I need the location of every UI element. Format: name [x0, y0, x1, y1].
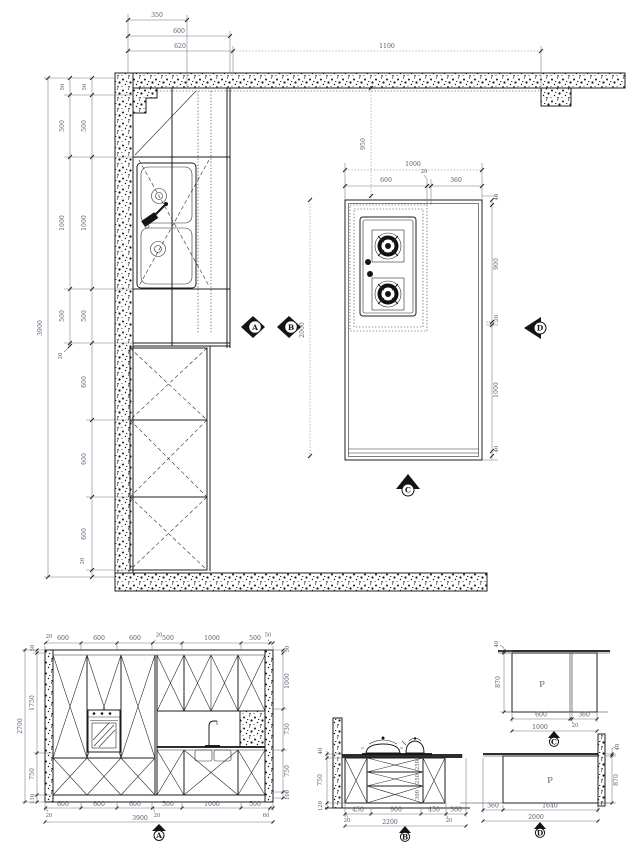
dim-label: 60 [263, 813, 270, 819]
dim-label: 50 [30, 645, 36, 652]
dim-label: 620 [174, 43, 186, 50]
dim-label: 600 [380, 177, 392, 184]
dim-label: 50 [265, 633, 272, 639]
dim-label: 500 [59, 310, 66, 322]
kettle-icon [402, 737, 424, 753]
dim-label: 300 [415, 790, 421, 800]
top-wall [115, 73, 625, 88]
dim-label: 600 [93, 801, 105, 808]
dim-label: 360 [450, 807, 462, 814]
dim-label: 730 [284, 723, 291, 735]
elevation-d-marker: D [534, 822, 546, 837]
dim-label: 750 [284, 765, 291, 777]
dim-label: 40 [615, 744, 621, 751]
dim-label: 600 [57, 635, 69, 642]
dim-label: 1100 [379, 43, 395, 50]
dim-label: 870 [613, 774, 620, 786]
dim-label: 600 [81, 376, 88, 388]
elevation-c-marker: C [548, 731, 560, 746]
dim-label: 1000 [59, 215, 66, 231]
counter-run [130, 88, 541, 571]
wall-return [240, 711, 265, 747]
dim-label: 360 [578, 712, 590, 719]
marker-letter: A [251, 323, 258, 332]
dim-label: 100 [285, 790, 291, 800]
dim-label: 500 [162, 635, 174, 642]
dim-label: 600 [535, 712, 547, 719]
dim-label: 250 [415, 774, 421, 784]
dim-label: 130 [30, 794, 36, 804]
marker-a: A [241, 316, 265, 338]
marker-b: B [277, 316, 301, 338]
dim-label: 50 [82, 84, 88, 91]
dim-label: 20 [494, 315, 500, 322]
dim-label: 600 [129, 801, 141, 808]
dim-label: 600 [129, 635, 141, 642]
marker-letter: C [551, 737, 557, 746]
pot-icon [361, 737, 403, 754]
dim-label: 2000 [299, 322, 306, 338]
dim-label: 3900 [132, 815, 148, 822]
panel-label: P [547, 776, 553, 786]
dim-label: 600 [81, 453, 88, 465]
dim-label: 1000 [284, 673, 291, 689]
dim-label: 50 [60, 84, 66, 91]
dim-label: 20 [46, 634, 53, 640]
dim-label: 500 [249, 635, 261, 642]
dim-label: 20 [344, 818, 351, 824]
elevation-c: P 40 870 600 360 20 1000 C [494, 641, 610, 747]
dim-label: 360 [487, 803, 499, 810]
dim-label: 3900 [37, 320, 44, 336]
marker-letter: B [288, 323, 294, 332]
elevation-d: P 40 870 360 1640 2000 D [460, 734, 621, 837]
island-dimensions: 950 1000 600 20 360 2000 40 900 20 1000 … [299, 86, 500, 460]
dim-label: 500 [162, 801, 174, 808]
faucet-icon [141, 202, 168, 228]
burner-icon [372, 230, 404, 262]
dim-label: 1000 [81, 215, 88, 231]
dim-label: 600 [93, 635, 105, 642]
marker-letter: D [537, 324, 544, 333]
dim-label: 950 [360, 138, 367, 150]
elevation-a-marker: A [152, 824, 166, 841]
dim-label: 750 [317, 774, 324, 786]
kitchen-plan-drawing: 350 600 620 1100 3900 50 500 1000 500 20… [0, 0, 632, 842]
bottom-wall [115, 573, 487, 591]
marker-c: C [396, 474, 420, 496]
dim-label: 1000 [405, 161, 421, 168]
panel-label: P [539, 680, 545, 690]
dim-label: 350 [151, 12, 163, 19]
dim-label: 1000 [204, 635, 220, 642]
dim-label: 40 [494, 446, 500, 453]
dim-label: 250 [415, 760, 421, 770]
dim-label: 600 [81, 528, 88, 540]
dim-label: 600 [173, 28, 185, 35]
dim-label: 360 [450, 177, 462, 184]
double-sink [137, 163, 196, 288]
dim-label: 120 [318, 801, 324, 811]
dim-label: 1000 [204, 801, 220, 808]
dim-label: 1000 [532, 724, 548, 731]
dim-label: 20 [46, 813, 53, 819]
floor-plan: 350 600 620 1100 3900 50 500 1000 500 20… [37, 12, 625, 591]
dim-label: 2000 [528, 814, 544, 821]
wall-section [333, 718, 342, 808]
dim-label: 40 [494, 194, 500, 201]
dim-label: 20 [421, 169, 428, 175]
elevation-a: 20 600 600 600 20 500 1000 500 50 50 175… [17, 633, 291, 841]
dim-label: 900 [493, 258, 500, 270]
dim-label: 1750 [29, 695, 36, 711]
dim-label: 1640 [542, 803, 558, 810]
dim-label: 450 [352, 807, 364, 814]
dim-label: 20 [446, 818, 453, 824]
dim-label: 600 [57, 801, 69, 808]
dim-label: 870 [495, 676, 502, 688]
dim-label: 20 [80, 558, 86, 565]
dim-label: 500 [81, 310, 88, 322]
marker-letter: D [537, 828, 544, 837]
wall-section [598, 734, 605, 806]
marker-d: D [524, 317, 546, 339]
knob-icon [367, 271, 373, 277]
island [345, 200, 482, 460]
elevation-b: 40 750 120 250 250 300 450 900 450 360 2… [317, 718, 470, 841]
elevation-c-dimensions: 40 870 600 360 20 1000 [494, 641, 599, 733]
dim-label: 750 [29, 768, 36, 780]
dim-label: 20 [154, 813, 161, 819]
knob-icon [365, 259, 371, 265]
oven [88, 710, 120, 752]
base-cabinets [130, 346, 210, 571]
marker-letter: C [405, 486, 411, 495]
dim-label: 900 [390, 807, 402, 814]
marker-letter: B [402, 832, 408, 841]
dim-label: 1000 [493, 382, 500, 398]
dim-label: 20 [572, 723, 579, 729]
corner-column [133, 88, 157, 113]
dim-label: 2700 [17, 718, 24, 734]
burner-icon [372, 278, 404, 310]
dim-label: 500 [249, 801, 261, 808]
cooktop [360, 217, 416, 316]
dim-label: 2200 [382, 819, 398, 826]
marker-letter: A [155, 831, 162, 840]
dim-label: 450 [428, 807, 440, 814]
drawing-sheet: 350 600 620 1100 3900 50 500 1000 500 20… [0, 0, 632, 842]
dim-label: 20 [58, 353, 64, 360]
elevation-b-marker: B [399, 826, 411, 841]
dim-label: 40 [494, 641, 500, 648]
wall-pier [541, 88, 571, 106]
dim-label: 500 [59, 120, 66, 132]
dim-label: 50 [285, 646, 291, 653]
dim-label: 40 [318, 748, 324, 755]
dim-label: 500 [81, 120, 88, 132]
sink-elevation [195, 721, 231, 761]
